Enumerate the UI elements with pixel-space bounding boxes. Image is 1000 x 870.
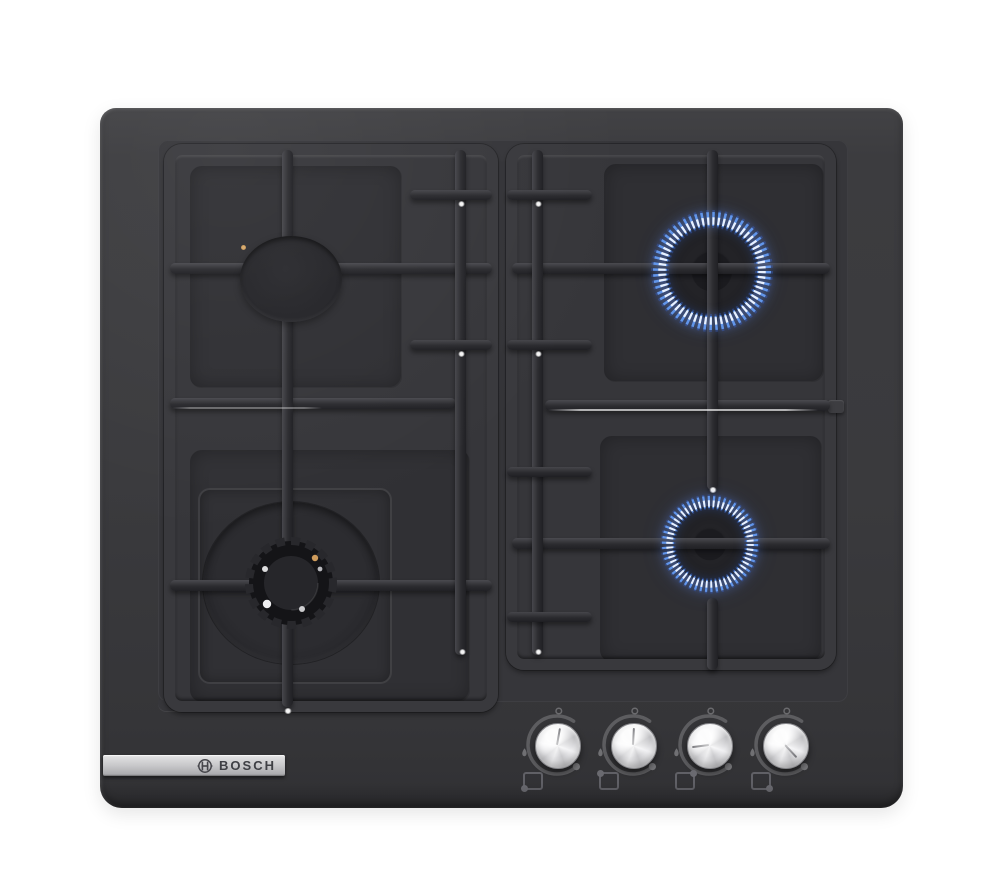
flame-icon bbox=[674, 748, 678, 756]
igniter-front-left bbox=[312, 555, 318, 561]
gas-hob-body: BOSCH bbox=[100, 108, 903, 808]
burner-dot bbox=[766, 785, 773, 792]
grate-finger bbox=[507, 467, 592, 477]
grate-finger bbox=[507, 190, 592, 200]
glint bbox=[262, 566, 268, 572]
flame-ring-rear-right bbox=[637, 196, 787, 346]
glint bbox=[458, 201, 465, 207]
burner-position-icon-bottom-right bbox=[751, 772, 771, 790]
glint bbox=[458, 351, 465, 357]
product-photo-stage: BOSCH bbox=[0, 0, 1000, 870]
burner-dot bbox=[521, 785, 528, 792]
burner-dot bbox=[597, 770, 604, 777]
flame-ring-front-right bbox=[648, 482, 772, 606]
glint bbox=[299, 606, 305, 612]
off-position-icon bbox=[556, 708, 562, 714]
brand-badge: BOSCH bbox=[103, 755, 285, 776]
glint bbox=[459, 649, 466, 655]
bosch-emblem-icon bbox=[197, 758, 213, 774]
grate-bar bbox=[455, 150, 466, 655]
knob-unit-rear-right bbox=[671, 702, 747, 798]
glint bbox=[284, 708, 292, 714]
burner-position-icon-bottom-left bbox=[523, 772, 543, 790]
knob-unit-rear-left bbox=[595, 702, 671, 798]
flame-icon bbox=[750, 748, 754, 756]
grate-finger bbox=[507, 612, 592, 622]
grate-finger bbox=[410, 190, 492, 200]
burner-position-icon-top-left bbox=[599, 772, 619, 790]
brand-logo-text: BOSCH bbox=[219, 759, 276, 772]
off-position-icon bbox=[784, 708, 790, 714]
glint bbox=[535, 351, 542, 357]
burner-position-icon-top-right bbox=[675, 772, 695, 790]
burner-dot bbox=[690, 770, 697, 777]
knob-unit-front-right bbox=[747, 702, 823, 798]
igniter-rear-left bbox=[241, 245, 246, 250]
knob-unit-front-left bbox=[519, 702, 595, 798]
burner-rear-left-cap bbox=[240, 236, 342, 322]
max-flame-cap bbox=[725, 763, 732, 770]
glint bbox=[318, 567, 323, 572]
pan-support-tab bbox=[828, 400, 844, 413]
flame-icon bbox=[522, 748, 526, 756]
grate-finger bbox=[410, 340, 492, 350]
max-flame-cap bbox=[801, 763, 808, 770]
grate-bar bbox=[532, 150, 543, 655]
max-flame-cap bbox=[649, 763, 656, 770]
max-flame-cap bbox=[573, 763, 580, 770]
flame-icon bbox=[598, 748, 602, 756]
off-position-icon bbox=[632, 708, 638, 714]
off-position-icon bbox=[708, 708, 714, 714]
glint bbox=[535, 201, 542, 207]
grate-bar bbox=[707, 598, 718, 670]
burner-front-left-head bbox=[236, 528, 346, 638]
glint bbox=[535, 649, 542, 655]
glint bbox=[263, 600, 271, 608]
highlight-line bbox=[172, 407, 322, 409]
highlight-line bbox=[548, 409, 818, 411]
grate-finger bbox=[507, 340, 592, 350]
